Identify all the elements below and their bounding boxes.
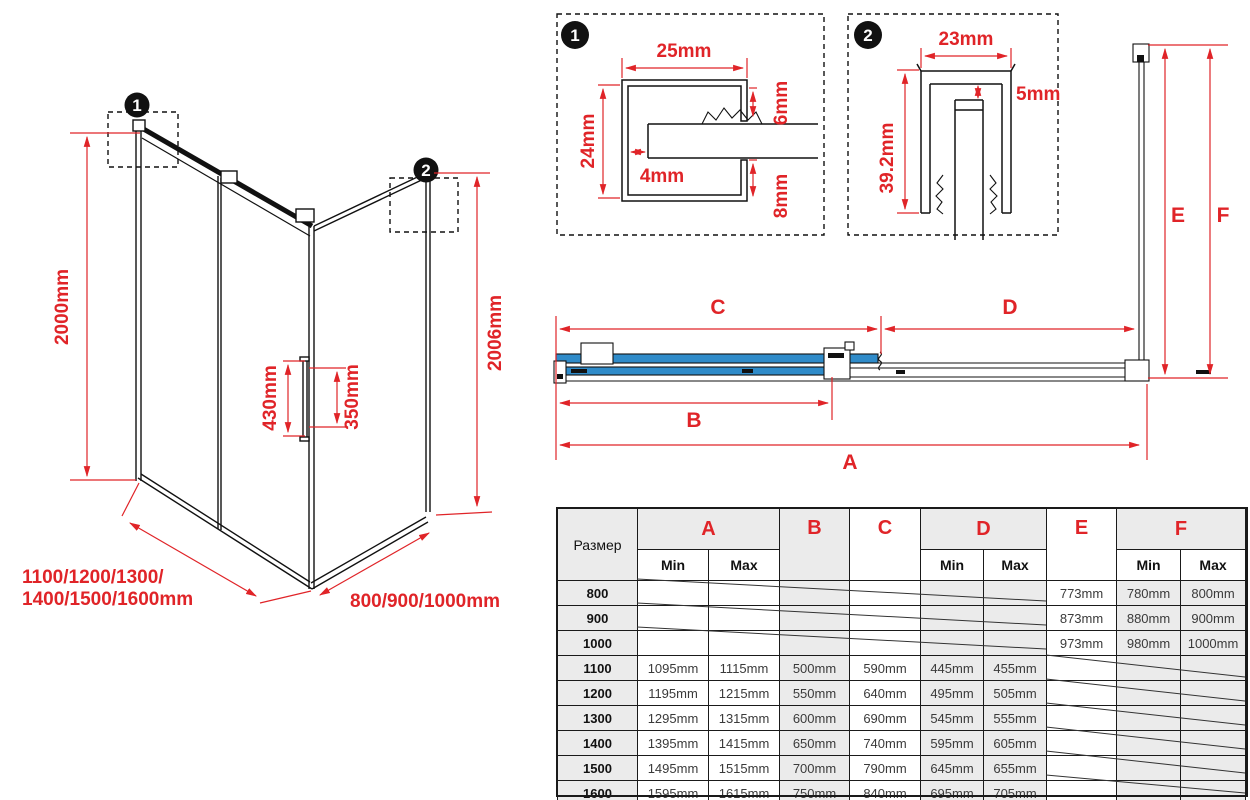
detail1-top-width-label: 25mm bbox=[657, 41, 712, 62]
marker-2-label: 2 bbox=[421, 161, 430, 180]
isometric-view bbox=[108, 112, 458, 589]
glass-break-symbol bbox=[879, 352, 882, 370]
detail1-slot-label: 4mm bbox=[640, 166, 684, 187]
detail2-top-width-label: 23mm bbox=[939, 29, 994, 50]
plan-dim-d: D bbox=[1002, 296, 1017, 319]
table-row: 1000 973mm 980mm 1000mm bbox=[558, 631, 1246, 656]
height-right-label: 2006mm bbox=[485, 295, 506, 371]
detail-2: 2 23mm 5mm 39.2mm bbox=[848, 14, 1060, 240]
col-header-b: B bbox=[780, 509, 850, 581]
height-left-label: 2000mm bbox=[52, 269, 73, 345]
glass-panel-section bbox=[955, 100, 983, 240]
roller-carriage-right bbox=[824, 348, 850, 379]
corner-bracket bbox=[1125, 360, 1149, 381]
front-bottom-edge bbox=[138, 474, 312, 589]
handle-length-label: 430mm bbox=[260, 365, 281, 431]
door-handle bbox=[303, 360, 307, 438]
track-profile-section bbox=[921, 71, 1011, 213]
seal-gasket bbox=[936, 175, 943, 214]
col-header-e: E bbox=[1047, 509, 1117, 581]
front-widths-label-1: 1100/1200/1300/ bbox=[22, 567, 164, 588]
plan-dim-e: E bbox=[1171, 204, 1185, 227]
glass-panel-section bbox=[648, 124, 818, 158]
detail1-lip-bottom-label: 8mm bbox=[771, 174, 792, 218]
roller-block bbox=[221, 171, 237, 183]
roller-carriage-left bbox=[581, 343, 613, 364]
table-row: 1400 1395mm 1415mm 650mm 740mm 595mm 605… bbox=[558, 731, 1246, 756]
table-row: 800 773mm 780mm 800mm bbox=[558, 581, 1246, 606]
detail-1: 1 25mm 24mm 4mm 6mm 8mm bbox=[557, 14, 824, 235]
d-min-header: Min bbox=[921, 550, 984, 581]
side-panel-plan bbox=[1139, 46, 1144, 362]
detail2-gap-label: 5mm bbox=[1016, 84, 1060, 105]
callout-box-2 bbox=[390, 178, 458, 232]
a-min-header: Min bbox=[638, 550, 709, 581]
side-widths-label: 800/900/1000mm bbox=[350, 591, 500, 612]
side-panel-edge bbox=[426, 172, 430, 512]
col-header-c: C bbox=[850, 509, 921, 581]
iso-dim-labels: 2000mm 2006mm 430mm 350mm 1100/1200/1300… bbox=[22, 269, 506, 612]
col-header-f: F bbox=[1117, 509, 1246, 550]
handle-holes-label: 350mm bbox=[342, 364, 363, 430]
col-header-a: A bbox=[638, 509, 780, 550]
plan-dimensions bbox=[556, 45, 1228, 460]
table-row: 1600 1595mm 1615mm 750mm 840mm 695mm 705… bbox=[558, 781, 1246, 800]
detail1-lip-top-label: 6mm bbox=[771, 81, 792, 125]
plan-dim-a: A bbox=[842, 451, 857, 474]
sliding-glass-bottom bbox=[556, 367, 828, 375]
corner-post bbox=[309, 224, 314, 589]
d-max-header: Max bbox=[984, 550, 1047, 581]
spec-sheet: 1 2 2000mm 2006mm 430mm 350mm 1100/1200/… bbox=[0, 0, 1250, 800]
rail-end-cap bbox=[133, 120, 145, 131]
fixed-panel-edge bbox=[218, 176, 221, 530]
left-wall-profile bbox=[136, 127, 141, 481]
f-max-header: Max bbox=[1181, 550, 1246, 581]
table-row: 1100 1095mm 1115mm 500mm 590mm 445mm 455… bbox=[558, 656, 1246, 681]
seal-gasket bbox=[990, 175, 997, 214]
plan-dim-b: B bbox=[686, 409, 701, 432]
plan-view: C D B A E F bbox=[554, 44, 1230, 474]
f-min-header: Min bbox=[1117, 550, 1181, 581]
roller-block bbox=[296, 209, 314, 222]
detail1-height-label: 24mm bbox=[578, 114, 599, 169]
detail-2-number: 2 bbox=[863, 26, 872, 45]
side-panel-top bbox=[314, 172, 428, 231]
plan-dim-c: C bbox=[710, 296, 725, 319]
track-flanges bbox=[917, 64, 1015, 71]
col-header-d: D bbox=[921, 509, 1047, 550]
size-column-header: Размер bbox=[558, 509, 638, 581]
side-bottom-edge bbox=[311, 517, 428, 589]
iso-markers: 1 2 bbox=[125, 93, 439, 183]
detail2-height-label: 39.2mm bbox=[877, 123, 898, 194]
table-row: 1300 1295mm 1315mm 600mm 690mm 545mm 555… bbox=[558, 706, 1246, 731]
table-row: 1200 1195mm 1215mm 550mm 640mm 495mm 505… bbox=[558, 681, 1246, 706]
size-table: Размер A B C D E F Min Max Min Max Min M… bbox=[557, 508, 1245, 794]
marker-1-label: 1 bbox=[132, 96, 141, 115]
front-widths-label-2: 1400/1500/1600mm bbox=[22, 589, 193, 610]
table-row: 1500 1495mm 1515mm 700mm 790mm 645mm 655… bbox=[558, 756, 1246, 781]
plan-dim-f: F bbox=[1217, 204, 1230, 227]
detail-1-number: 1 bbox=[570, 26, 579, 45]
a-max-header: Max bbox=[709, 550, 780, 581]
table-row: 900 873mm 880mm 900mm bbox=[558, 606, 1246, 631]
